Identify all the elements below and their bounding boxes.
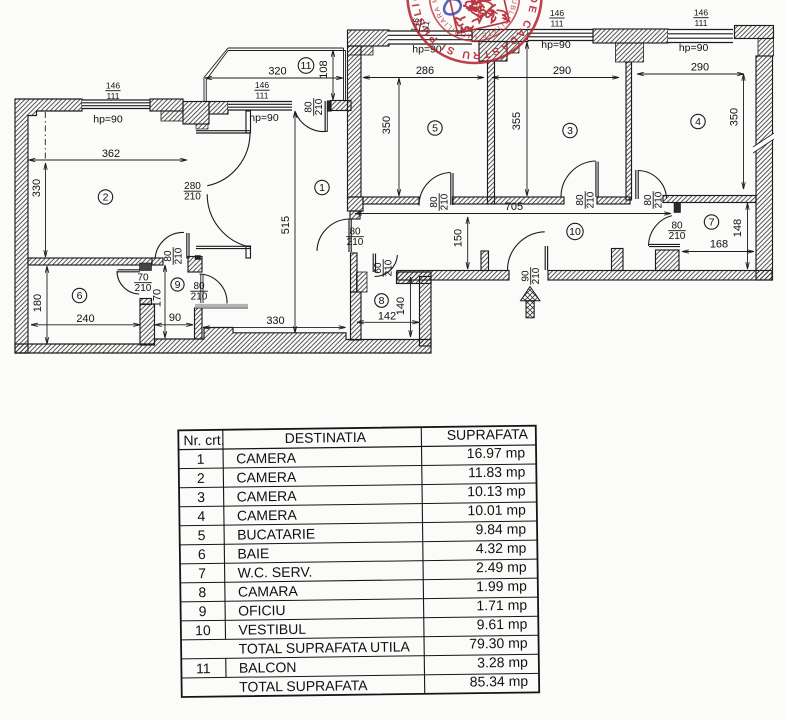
svg-text:Nr. crt.: Nr. crt. <box>183 432 224 449</box>
svg-text:BAIE: BAIE <box>237 545 269 561</box>
svg-text:210: 210 <box>135 283 152 294</box>
svg-text:TOTAL SUPRAFATA UTILA: TOTAL SUPRAFATA UTILA <box>239 638 411 656</box>
svg-text:CAMERA: CAMERA <box>237 507 298 524</box>
svg-text:111: 111 <box>695 18 708 28</box>
svg-text:210: 210 <box>347 237 364 248</box>
svg-text:BUCATARIE: BUCATARIE <box>237 526 315 543</box>
svg-text:3: 3 <box>567 125 573 137</box>
svg-text:6: 6 <box>198 546 206 562</box>
svg-text:4.32 mp: 4.32 mp <box>476 540 527 557</box>
svg-text:210: 210 <box>440 193 451 210</box>
svg-text:CAMERA: CAMERA <box>237 488 298 505</box>
svg-text:150: 150 <box>453 229 465 247</box>
svg-text:320: 320 <box>268 66 286 78</box>
svg-text:350: 350 <box>729 108 741 126</box>
svg-text:280: 280 <box>184 181 201 192</box>
svg-text:VESTIBUL: VESTIBUL <box>238 621 306 638</box>
svg-text:210: 210 <box>531 267 542 284</box>
svg-text:80: 80 <box>304 101 315 113</box>
svg-text:10: 10 <box>569 226 581 238</box>
svg-text:330: 330 <box>266 315 284 327</box>
svg-text:2: 2 <box>103 192 109 204</box>
svg-text:1: 1 <box>197 451 205 467</box>
svg-text:CAMERA: CAMERA <box>236 450 297 467</box>
svg-text:11: 11 <box>196 660 211 676</box>
svg-text:705: 705 <box>505 201 523 213</box>
svg-text:3: 3 <box>197 489 205 505</box>
svg-text:CAMARA: CAMARA <box>238 583 299 600</box>
svg-text:80: 80 <box>671 221 683 232</box>
svg-text:7: 7 <box>709 217 715 229</box>
svg-text:85.34 mp: 85.34 mp <box>470 673 529 690</box>
svg-text:80: 80 <box>349 227 361 238</box>
svg-text:8: 8 <box>198 584 206 600</box>
svg-text:146: 146 <box>550 8 564 18</box>
svg-text:SUPRAFATA: SUPRAFATA <box>447 426 529 443</box>
svg-text:hp=90: hp=90 <box>249 112 279 124</box>
svg-text:350: 350 <box>381 116 393 134</box>
svg-text:108: 108 <box>318 60 330 78</box>
svg-text:210: 210 <box>384 259 395 276</box>
svg-text:9: 9 <box>175 279 181 291</box>
svg-text:90: 90 <box>521 270 532 282</box>
svg-text:70: 70 <box>137 273 149 284</box>
svg-text:10: 10 <box>195 622 211 638</box>
svg-text:hp=90: hp=90 <box>93 114 123 126</box>
svg-text:W.C. SERV.: W.C. SERV. <box>238 564 313 581</box>
svg-text:79.30 mp: 79.30 mp <box>469 635 528 652</box>
svg-text:146: 146 <box>106 81 120 91</box>
svg-text:60: 60 <box>373 262 384 274</box>
svg-text:9.61 mp: 9.61 mp <box>477 616 528 633</box>
svg-text:8: 8 <box>379 295 385 307</box>
svg-text:BALCON: BALCON <box>239 659 297 676</box>
svg-text:111: 111 <box>256 91 269 101</box>
svg-text:330: 330 <box>31 179 43 197</box>
svg-text:80: 80 <box>575 194 586 206</box>
svg-text:80: 80 <box>429 196 440 208</box>
svg-text:90: 90 <box>169 312 181 324</box>
svg-text:7: 7 <box>198 565 206 581</box>
svg-text:OFICIU: OFICIU <box>238 602 286 619</box>
svg-text:210: 210 <box>654 191 665 208</box>
svg-text:TOTAL SUPRAFATA: TOTAL SUPRAFATA <box>239 677 368 695</box>
svg-text:2: 2 <box>197 470 205 486</box>
svg-text:5: 5 <box>432 123 438 135</box>
svg-text:180: 180 <box>32 294 44 312</box>
svg-text:CAMERA: CAMERA <box>236 469 297 486</box>
svg-text:148: 148 <box>732 219 744 237</box>
svg-text:168: 168 <box>710 239 728 251</box>
svg-text:362: 362 <box>102 148 120 160</box>
svg-text:210: 210 <box>191 292 208 303</box>
svg-text:210: 210 <box>184 192 201 203</box>
svg-text:142: 142 <box>378 311 396 323</box>
svg-text:80: 80 <box>193 281 205 292</box>
svg-text:5: 5 <box>198 527 206 543</box>
svg-text:210: 210 <box>669 231 686 242</box>
svg-text:1.71 mp: 1.71 mp <box>476 597 527 614</box>
svg-text:140: 140 <box>395 297 407 315</box>
svg-text:9: 9 <box>199 603 207 619</box>
svg-text:4: 4 <box>197 508 205 524</box>
svg-text:146: 146 <box>694 8 708 18</box>
svg-text:16.97 mp: 16.97 mp <box>467 444 526 461</box>
svg-text:80: 80 <box>643 194 654 206</box>
svg-text:6: 6 <box>77 290 83 302</box>
svg-text:hp=90: hp=90 <box>679 42 709 54</box>
svg-text:10.01 mp: 10.01 mp <box>467 501 526 518</box>
svg-text:DESTINATIA: DESTINATIA <box>285 429 367 446</box>
svg-text:111: 111 <box>551 18 564 28</box>
svg-text:290: 290 <box>691 62 709 74</box>
svg-text:11.83 mp: 11.83 mp <box>468 463 526 480</box>
svg-text:111: 111 <box>107 91 120 101</box>
svg-text:240: 240 <box>76 313 94 325</box>
svg-text:286: 286 <box>416 65 434 77</box>
svg-text:210: 210 <box>586 191 597 208</box>
svg-text:11: 11 <box>301 60 312 72</box>
svg-text:3.28 mp: 3.28 mp <box>477 654 528 671</box>
svg-text:4: 4 <box>695 116 701 128</box>
svg-text:146: 146 <box>255 80 269 90</box>
svg-text:10.13 mp: 10.13 mp <box>467 482 526 499</box>
svg-text:515: 515 <box>280 216 292 234</box>
svg-text:290: 290 <box>553 65 571 77</box>
svg-text:hp=90: hp=90 <box>541 39 571 51</box>
svg-text:9.84 mp: 9.84 mp <box>475 521 526 538</box>
svg-text:2.49 mp: 2.49 mp <box>476 559 527 576</box>
svg-text:170: 170 <box>152 289 164 307</box>
svg-text:210: 210 <box>174 247 185 264</box>
svg-text:1: 1 <box>319 182 325 194</box>
svg-text:210: 210 <box>314 98 325 115</box>
svg-text:1.99 mp: 1.99 mp <box>476 578 527 595</box>
svg-text:80: 80 <box>163 250 174 262</box>
svg-text:355: 355 <box>511 112 523 130</box>
